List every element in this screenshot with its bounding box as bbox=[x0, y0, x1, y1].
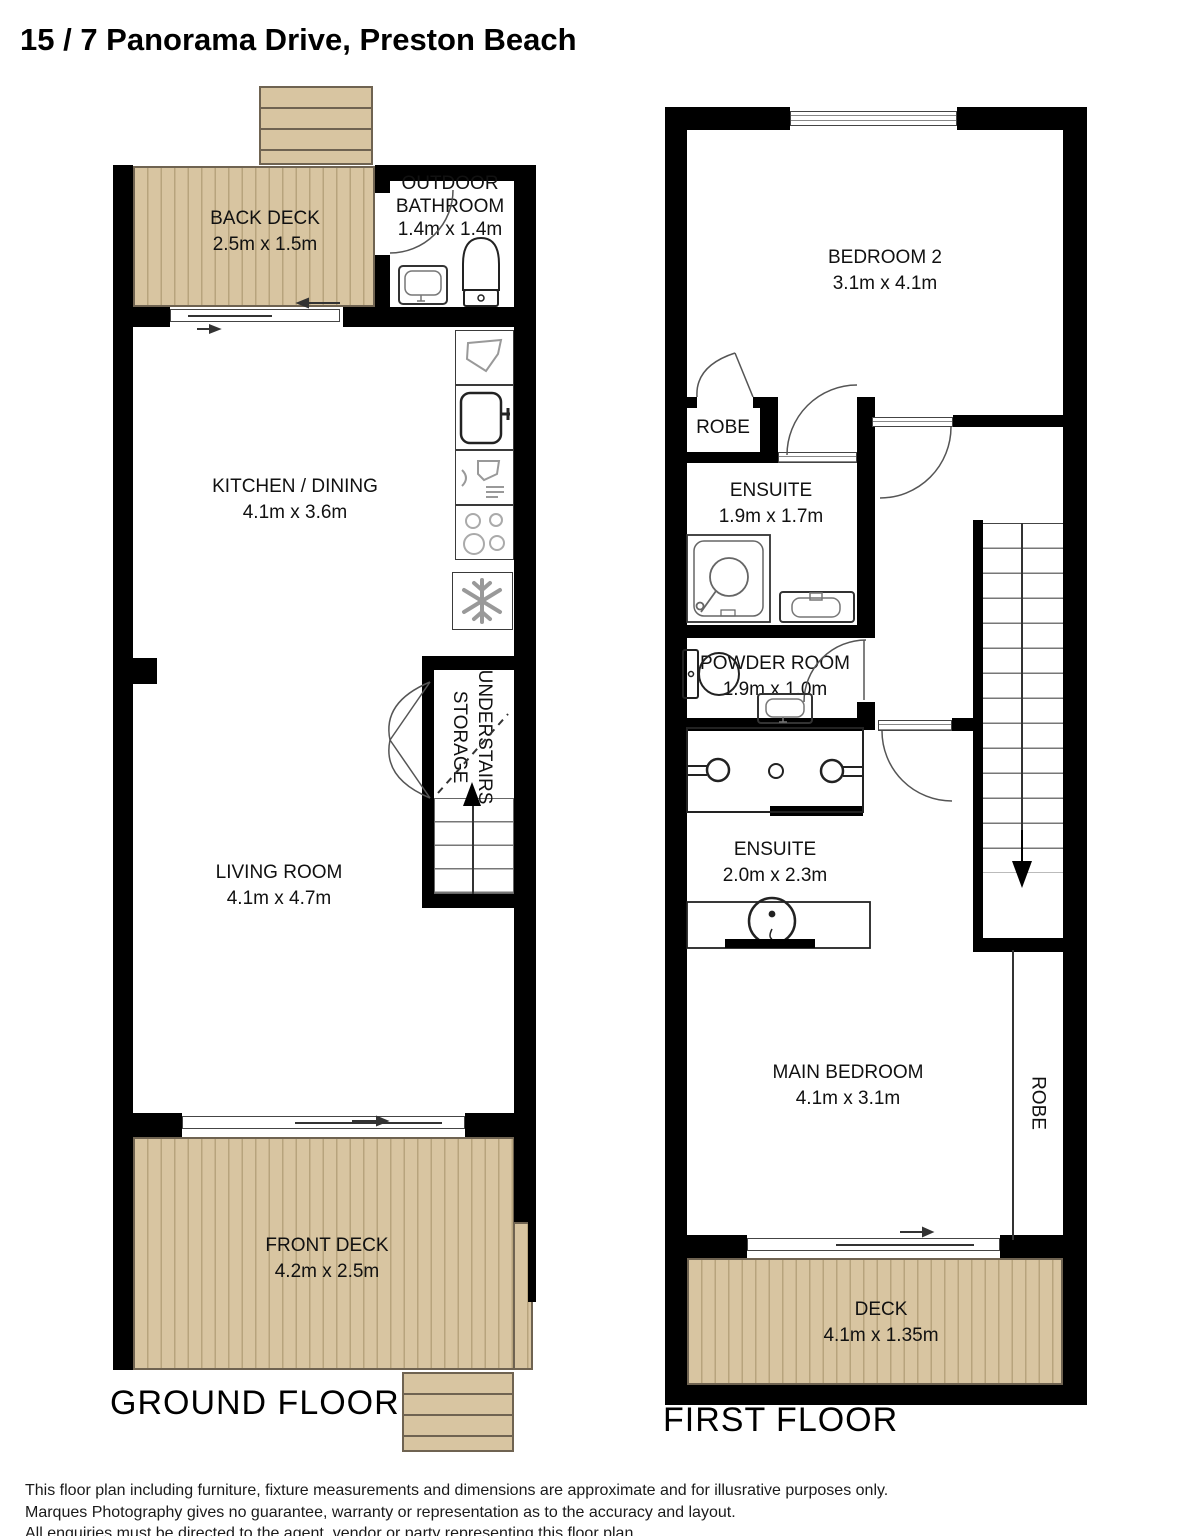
living-room-label: LIVING ROOM 4.1m x 4.7m bbox=[216, 860, 343, 912]
room-dims: 3.1m x 4.1m bbox=[828, 271, 942, 297]
outdoor-bathroom-label: OUTDOOR BATHROOM 1.4m x 1.4m bbox=[396, 172, 504, 241]
room-dims: 2.0m x 2.3m bbox=[723, 863, 828, 889]
ff-top-wall-left bbox=[665, 107, 790, 130]
front-deck-label: FRONT DECK 4.2m x 2.5m bbox=[265, 1233, 388, 1285]
kitchen-dining-label: KITCHEN / DINING 4.1m x 3.6m bbox=[212, 474, 378, 526]
room-name: POWDER ROOM bbox=[700, 651, 850, 677]
front-deck-steps bbox=[402, 1372, 514, 1452]
room-name: ENSUITE bbox=[719, 478, 824, 504]
ff-hall-wall bbox=[857, 397, 875, 638]
powder-room-label: POWDER ROOM 1.9m x 1.0m bbox=[700, 651, 850, 703]
gf-front-wall-left bbox=[133, 1113, 182, 1137]
ensuite1-cavity-door bbox=[778, 452, 857, 463]
toilet-icon bbox=[463, 238, 499, 306]
robe-main-label: ROBE bbox=[1026, 1076, 1051, 1130]
gf-wall-pier bbox=[133, 658, 157, 684]
gf-bathroom-divider-jamb bbox=[375, 181, 390, 193]
room-name: DECK bbox=[823, 1297, 938, 1323]
room-dims: 4.1m x 3.6m bbox=[212, 500, 378, 526]
round-basin-vanity-icon bbox=[687, 898, 870, 948]
robe1-top-jamb bbox=[687, 397, 697, 408]
room-name: OUTDOOR bbox=[396, 172, 504, 195]
disclaimer-line: Marques Photography gives no guarantee, … bbox=[25, 1502, 888, 1524]
kitchen-sink-unit bbox=[455, 385, 514, 450]
hall-wall-seg bbox=[952, 718, 973, 731]
bath-icon bbox=[687, 728, 863, 812]
vanity-sink-icon bbox=[780, 592, 854, 622]
ff-stairs-bottom-wall bbox=[973, 938, 1087, 952]
room-dims: 1.9m x 1.7m bbox=[719, 504, 824, 530]
room-name: MAIN BEDROOM bbox=[773, 1060, 924, 1086]
kitchen-cabinet bbox=[455, 330, 514, 385]
back-deck-label: BACK DECK 2.5m x 1.5m bbox=[210, 206, 320, 258]
back-sliding-door bbox=[170, 309, 340, 322]
disclaimer-line: This floor plan including furniture, fix… bbox=[25, 1480, 888, 1502]
front-sliding-door bbox=[182, 1116, 465, 1129]
gf-storage-left-wall bbox=[422, 656, 434, 908]
room-dims: 4.1m x 3.1m bbox=[773, 1086, 924, 1112]
disclaimer-line: All enquiries must be directed to the ag… bbox=[25, 1523, 888, 1536]
gf-deck-left-wall bbox=[113, 1137, 133, 1370]
gf-rear-wall-left bbox=[113, 307, 170, 327]
room-name: BEDROOM 2 bbox=[828, 245, 942, 271]
room-name: STORAGE bbox=[447, 670, 472, 805]
powder-bottom-wall bbox=[687, 718, 863, 731]
robe1-door bbox=[697, 353, 753, 397]
cooktop-unit bbox=[455, 505, 514, 560]
bedroom2-door-arc bbox=[880, 427, 951, 498]
main-bedroom-label: MAIN BEDROOM 4.1m x 3.1m bbox=[773, 1060, 924, 1112]
ff-front-wall-left bbox=[687, 1235, 747, 1258]
shower-icon bbox=[687, 535, 770, 622]
ff-left-wall bbox=[665, 107, 687, 1405]
ground-floor-title: GROUND FLOOR bbox=[110, 1384, 400, 1423]
ff-deck-label: DECK 4.1m x 1.35m bbox=[823, 1297, 938, 1349]
ensuite1-label: ENSUITE 1.9m x 1.7m bbox=[719, 478, 824, 530]
room-dims: 1.9m x 1.0m bbox=[700, 677, 850, 703]
disclaimer: This floor plan including furniture, fix… bbox=[25, 1480, 888, 1536]
back-deck-steps bbox=[259, 86, 373, 165]
room-dims: 1.4m x 1.4m bbox=[396, 218, 504, 241]
floor-plan-page: 15 / 7 Panorama Drive, Preston Beach bbox=[0, 0, 1200, 1536]
gf-bathroom-divider-wall bbox=[375, 255, 390, 307]
ensuite2-label: ENSUITE 2.0m x 2.3m bbox=[723, 837, 828, 889]
room-name: KITCHEN / DINING bbox=[212, 474, 378, 500]
page-title: 15 / 7 Panorama Drive, Preston Beach bbox=[20, 22, 577, 58]
sink-icon bbox=[399, 266, 447, 304]
main-bedroom-door-arc bbox=[882, 731, 952, 801]
room-name: BATHROOM bbox=[396, 195, 504, 218]
room-dims: 4.1m x 1.35m bbox=[823, 1323, 938, 1349]
room-name: UNDERSTAIRS bbox=[472, 670, 497, 805]
bedroom2-window bbox=[790, 111, 957, 126]
gf-stairs bbox=[434, 798, 514, 894]
room-name: ENSUITE bbox=[723, 837, 828, 863]
main-bedroom-doorway bbox=[878, 720, 952, 731]
ff-stairs-center-line bbox=[1021, 523, 1023, 853]
ensuite1-powder-divider bbox=[687, 625, 875, 638]
room-dims: 2.5m x 1.5m bbox=[210, 232, 320, 258]
bedroom2-label: BEDROOM 2 3.1m x 4.1m bbox=[828, 245, 942, 297]
bedroom2-doorway bbox=[872, 417, 953, 427]
gf-stairs-center-line bbox=[472, 798, 474, 894]
gf-storage-top-wall bbox=[434, 656, 514, 670]
room-dims: 4.1m x 4.7m bbox=[216, 886, 343, 912]
gf-stairs-bottom-wall bbox=[422, 894, 536, 908]
main-bedroom-sliding-door bbox=[747, 1238, 1000, 1251]
dishwasher-unit bbox=[455, 450, 514, 505]
ff-stairs-left-wall bbox=[973, 520, 983, 950]
room-name: FRONT DECK bbox=[265, 1233, 388, 1259]
bedroom2-bottom-wall bbox=[953, 415, 1063, 427]
understairs-storage-label: UNDERSTAIRS STORAGE bbox=[447, 670, 497, 805]
room-name: LIVING ROOM bbox=[216, 860, 343, 886]
gf-rear-wall-right bbox=[343, 307, 536, 327]
ensuite1-door-arc bbox=[787, 385, 857, 455]
gf-deck-notch-wall bbox=[528, 1222, 536, 1302]
robe-bedroom2-label: ROBE bbox=[696, 417, 750, 439]
fridge-unit bbox=[452, 572, 513, 630]
first-floor-title: FIRST FLOOR bbox=[663, 1401, 898, 1440]
gf-front-wall-right bbox=[465, 1113, 536, 1137]
robe1-bottom-wall bbox=[687, 452, 778, 463]
room-dims: 4.2m x 2.5m bbox=[265, 1259, 388, 1285]
room-name: BACK DECK bbox=[210, 206, 320, 232]
ff-stairs bbox=[983, 523, 1063, 873]
bath-wall-seg bbox=[770, 806, 863, 816]
ff-right-wall bbox=[1063, 107, 1087, 1405]
robe-main-wall-line bbox=[1012, 950, 1014, 1240]
ff-front-wall-right bbox=[1000, 1235, 1063, 1258]
